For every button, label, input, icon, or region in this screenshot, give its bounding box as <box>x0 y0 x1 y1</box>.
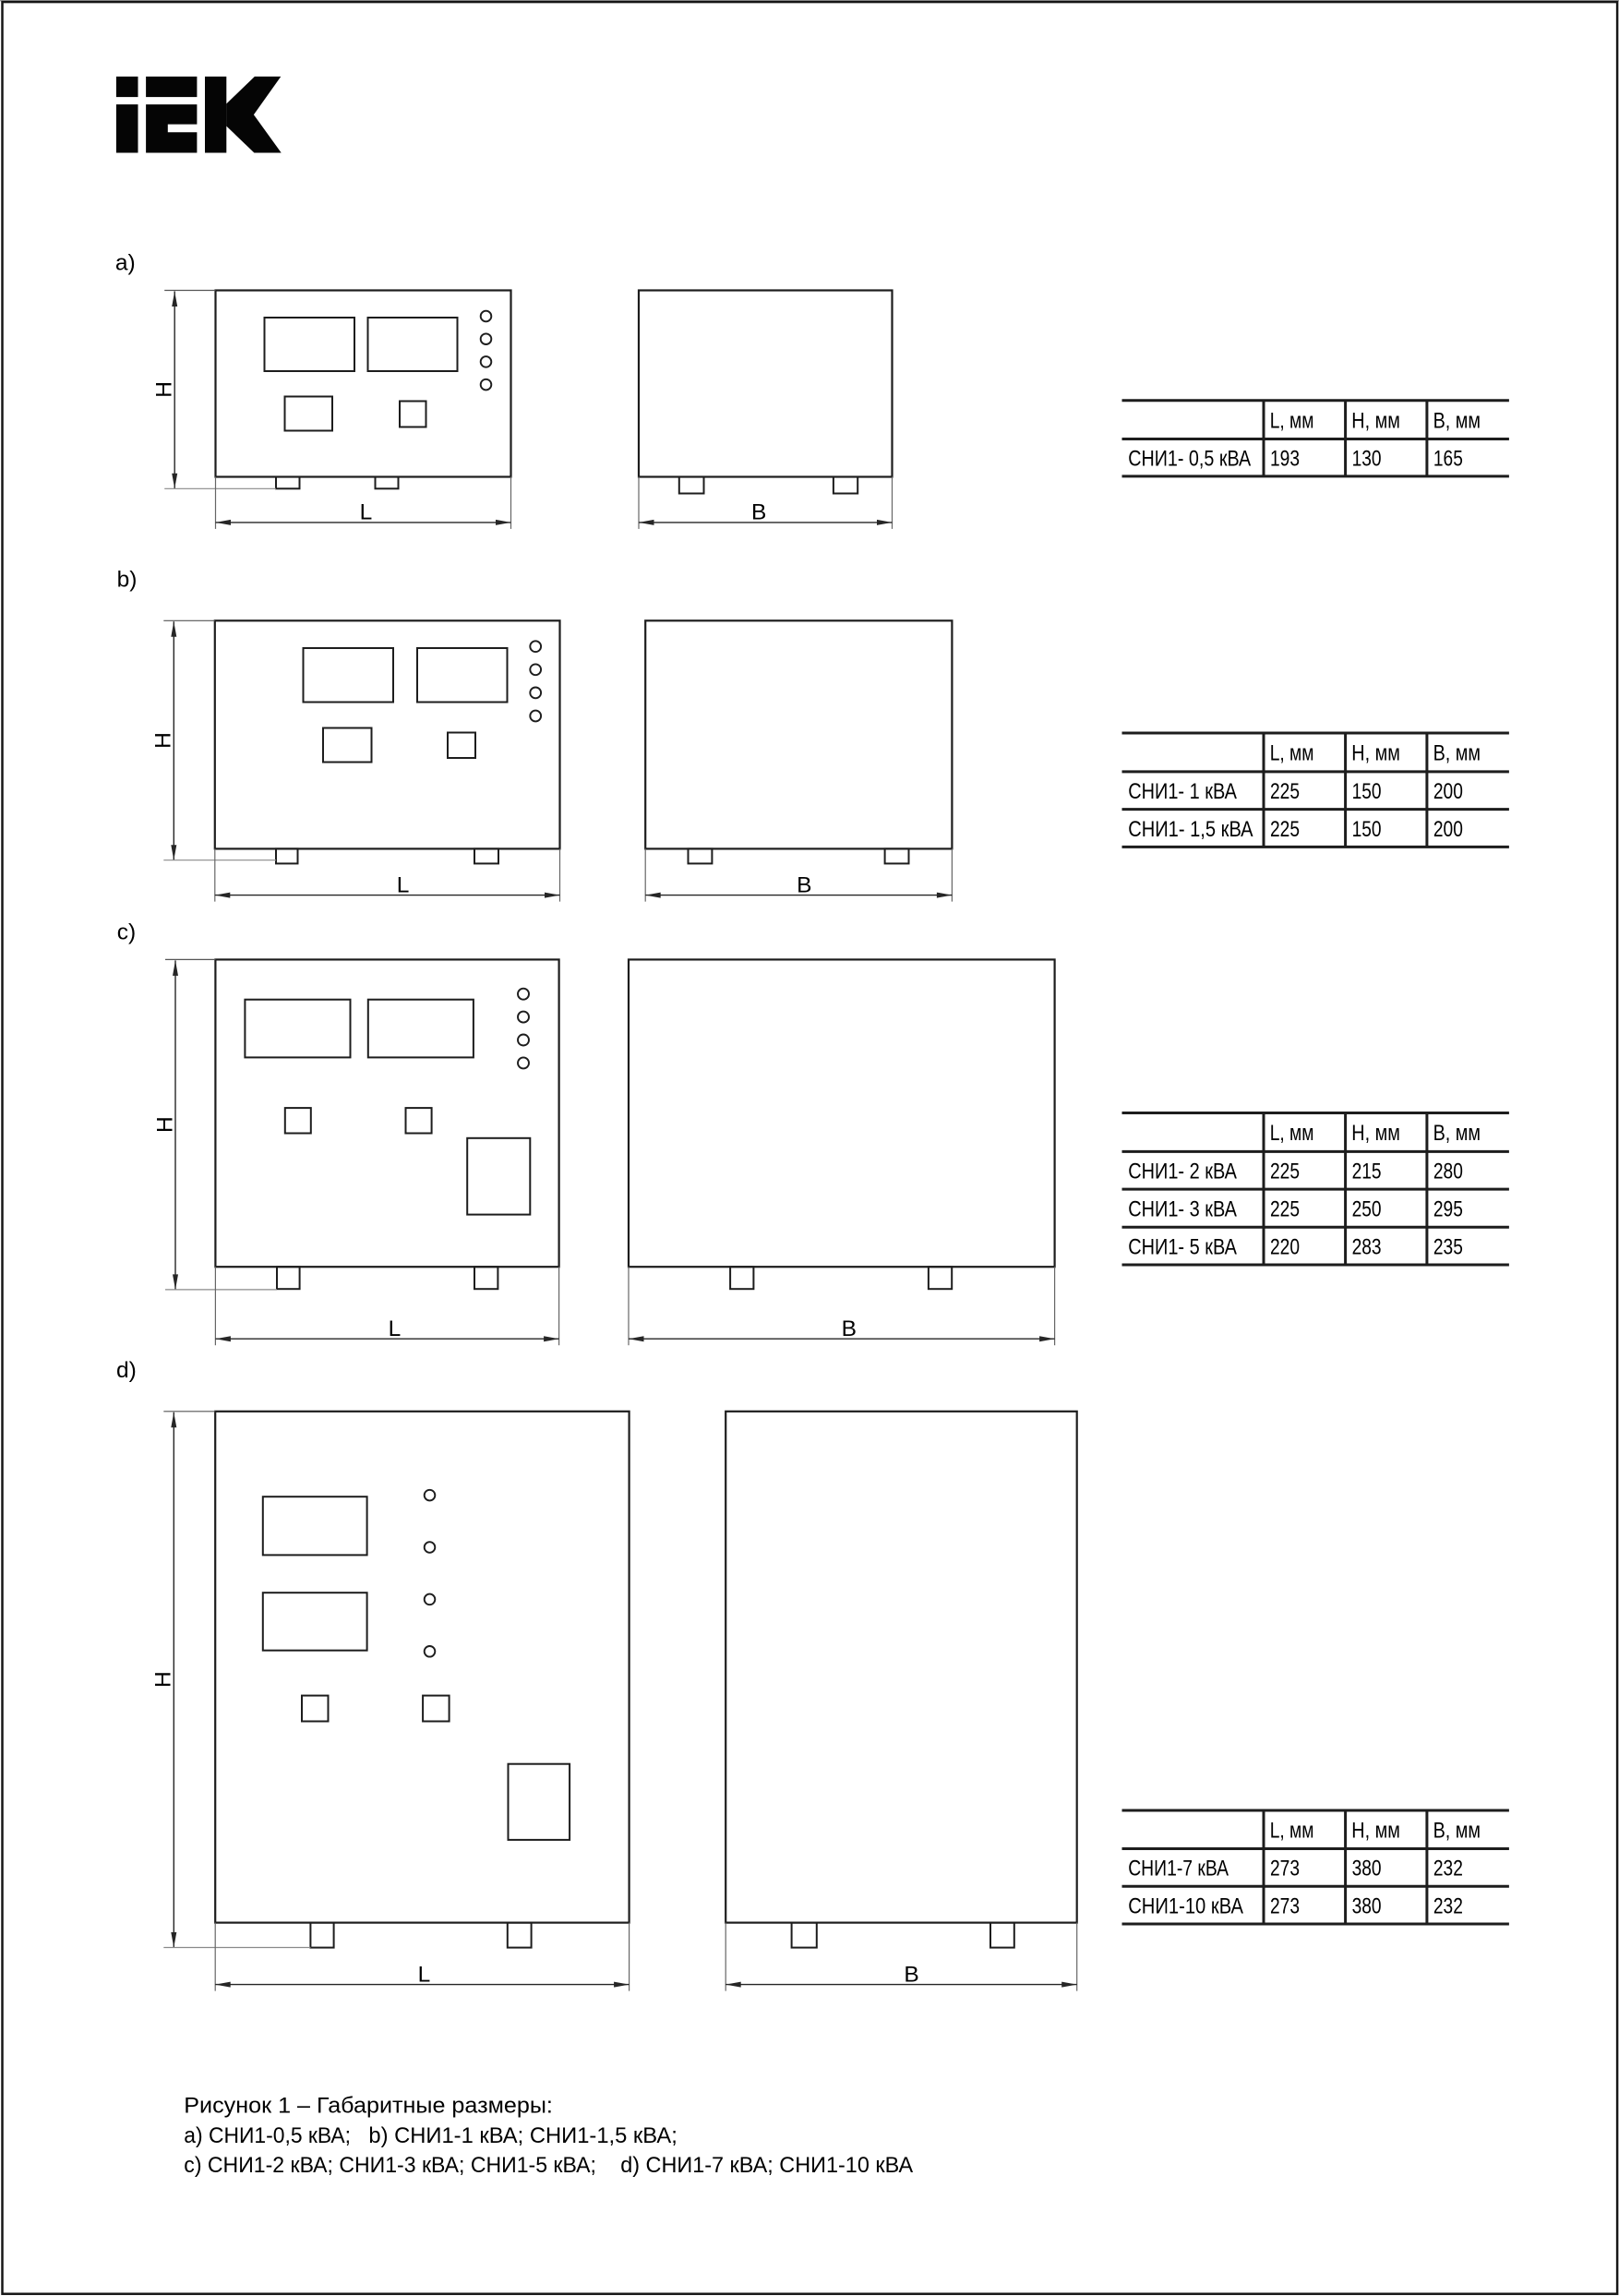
svg-text:СНИ1-10 кВА: СНИ1-10 кВА <box>1128 1893 1243 1918</box>
svg-text:B: B <box>797 872 811 897</box>
svg-text:225: 225 <box>1270 779 1300 804</box>
svg-text:СНИ1- 5 кВА: СНИ1- 5 кВА <box>1128 1235 1237 1260</box>
svg-text:СНИ1- 3 кВА: СНИ1- 3 кВА <box>1128 1196 1237 1221</box>
svg-text:232: 232 <box>1433 1857 1463 1881</box>
svg-text:H: H <box>151 1671 176 1688</box>
svg-text:d) СНИ1-7 кВА; СНИ1-10 кВА: d) СНИ1-7 кВА; СНИ1-10 кВА <box>620 2153 914 2178</box>
svg-text:295: 295 <box>1433 1196 1463 1221</box>
svg-text:H, мм: H, мм <box>1351 1819 1400 1844</box>
svg-text:a): a) <box>115 251 136 276</box>
svg-text:L: L <box>397 872 410 897</box>
svg-text:СНИ1- 0,5 кВА: СНИ1- 0,5 кВА <box>1128 447 1252 472</box>
svg-text:200: 200 <box>1433 779 1463 804</box>
svg-text:220: 220 <box>1270 1235 1300 1260</box>
svg-text:Рисунок 1 – Габаритные размеры: Рисунок 1 – Габаритные размеры: <box>184 2094 553 2119</box>
svg-text:215: 215 <box>1352 1160 1382 1184</box>
svg-text:СНИ1- 1,5 кВА: СНИ1- 1,5 кВА <box>1128 817 1253 842</box>
svg-text:B, мм: B, мм <box>1433 1819 1481 1844</box>
svg-text:c) СНИ1-2 кВА; СНИ1-3 кВА; СНИ: c) СНИ1-2 кВА; СНИ1-3 кВА; СНИ1-5 кВА; <box>184 2153 596 2178</box>
svg-text:СНИ1- 1 кВА: СНИ1- 1 кВА <box>1128 779 1237 804</box>
svg-text:283: 283 <box>1352 1235 1382 1260</box>
svg-text:СНИ1-7 кВА: СНИ1-7 кВА <box>1128 1857 1229 1881</box>
svg-text:B, мм: B, мм <box>1433 1121 1481 1146</box>
svg-text:235: 235 <box>1433 1235 1463 1260</box>
svg-text:H, мм: H, мм <box>1351 741 1400 766</box>
svg-text:d): d) <box>116 1358 137 1383</box>
svg-text:H, мм: H, мм <box>1351 408 1400 433</box>
svg-text:250: 250 <box>1352 1196 1382 1221</box>
svg-text:225: 225 <box>1270 1196 1300 1221</box>
svg-text:193: 193 <box>1270 447 1300 472</box>
svg-text:200: 200 <box>1433 817 1463 842</box>
svg-text:150: 150 <box>1352 817 1382 842</box>
svg-text:L: L <box>360 500 373 525</box>
svg-text:B: B <box>751 500 766 525</box>
svg-text:a) СНИ1-0,5 кВА;: a) СНИ1-0,5 кВА; <box>184 2123 351 2148</box>
svg-text:225: 225 <box>1270 817 1300 842</box>
svg-text:165: 165 <box>1433 447 1463 472</box>
svg-text:380: 380 <box>1352 1857 1382 1881</box>
svg-text:L: L <box>418 1962 431 1987</box>
svg-text:150: 150 <box>1352 779 1382 804</box>
svg-text:СНИ1- 2 кВА: СНИ1- 2 кВА <box>1128 1160 1237 1184</box>
svg-text:380: 380 <box>1352 1893 1382 1918</box>
svg-text:c): c) <box>117 920 136 945</box>
svg-text:H, мм: H, мм <box>1351 1121 1400 1146</box>
svg-text:L, мм: L, мм <box>1270 741 1314 766</box>
svg-text:B: B <box>904 1962 918 1987</box>
svg-text:130: 130 <box>1352 447 1382 472</box>
svg-text:225: 225 <box>1270 1160 1300 1184</box>
svg-text:B, мм: B, мм <box>1433 408 1481 433</box>
svg-text:L, мм: L, мм <box>1270 408 1314 433</box>
svg-text:L, мм: L, мм <box>1270 1121 1314 1146</box>
svg-text:H: H <box>151 732 176 749</box>
svg-text:273: 273 <box>1270 1857 1300 1881</box>
svg-text:b): b) <box>117 568 138 593</box>
svg-text:H: H <box>152 381 177 398</box>
svg-text:L: L <box>389 1316 402 1341</box>
svg-text:232: 232 <box>1433 1893 1463 1918</box>
svg-text:B: B <box>842 1316 857 1341</box>
svg-text:b) СНИ1-1 кВА; СНИ1-1,5 кВА;: b) СНИ1-1 кВА; СНИ1-1,5 кВА; <box>368 2123 677 2148</box>
svg-text:280: 280 <box>1433 1160 1463 1184</box>
svg-text:L, мм: L, мм <box>1270 1819 1314 1844</box>
svg-text:B, мм: B, мм <box>1433 741 1481 766</box>
svg-text:273: 273 <box>1270 1893 1300 1918</box>
svg-text:H: H <box>152 1116 177 1133</box>
